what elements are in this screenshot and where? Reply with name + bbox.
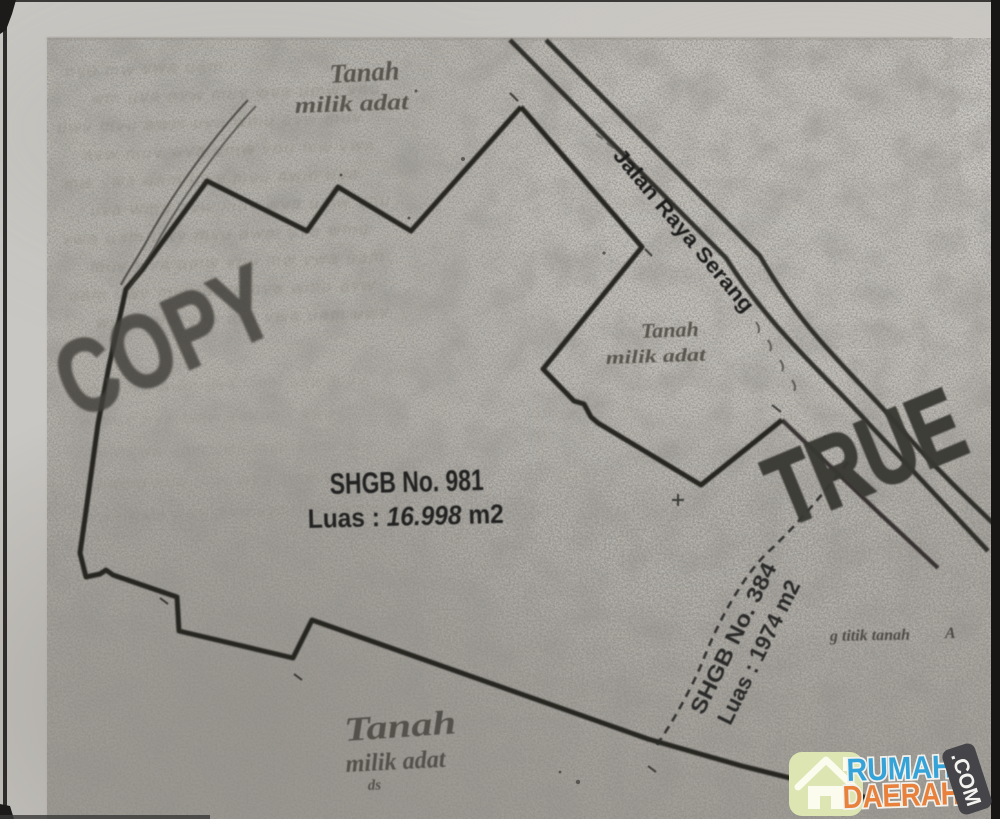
svg-text:ds: ds bbox=[367, 777, 381, 794]
svg-text:milik adat: milik adat bbox=[345, 746, 447, 778]
svg-text:milik adat: milik adat bbox=[294, 89, 410, 118]
svg-text:Tanah: Tanah bbox=[329, 55, 400, 89]
svg-text:milik adat: milik adat bbox=[605, 344, 707, 369]
svg-text:DAERAH: DAERAH bbox=[842, 775, 961, 815]
svg-text:Tanah: Tanah bbox=[640, 317, 699, 343]
svg-text:g titik tanah: g titik tanah bbox=[829, 627, 910, 645]
svg-text:SHGB No. 981: SHGB No. 981 bbox=[329, 464, 484, 501]
svg-text:A: A bbox=[944, 625, 956, 642]
svg-text:Tanah: Tanah bbox=[343, 704, 457, 749]
svg-text:Luas : 16.998 m2: Luas : 16.998 m2 bbox=[307, 499, 504, 534]
